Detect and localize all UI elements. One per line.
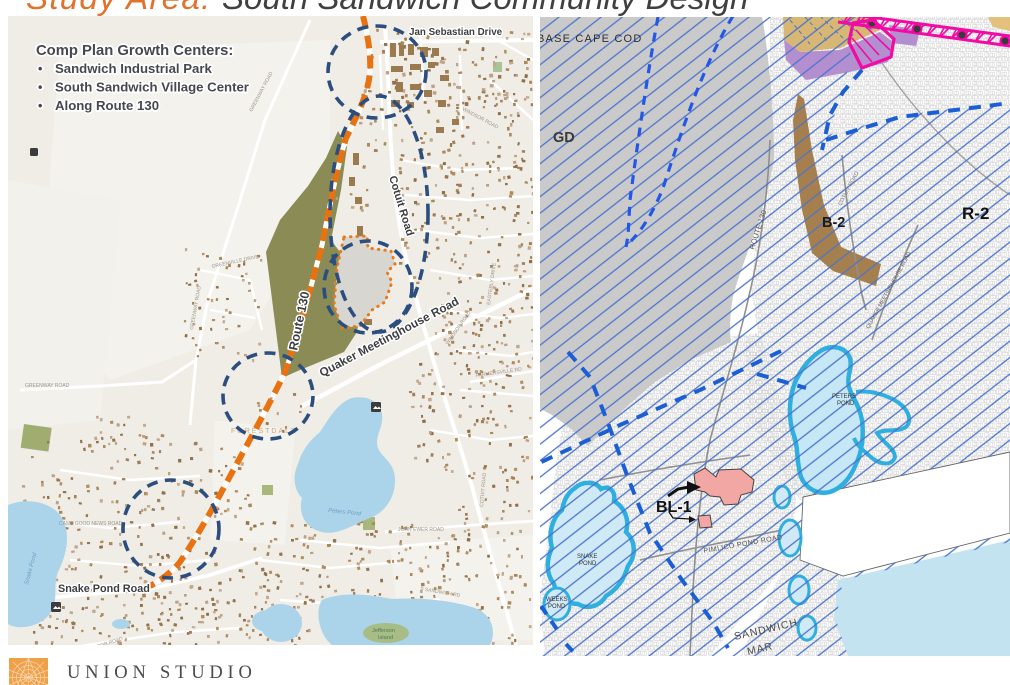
svg-text:Sandwich Industrial Park: Sandwich Industrial Park — [55, 61, 212, 76]
svg-text:B-2: B-2 — [822, 215, 845, 231]
svg-text:Jefferson: Jefferson — [372, 628, 395, 634]
svg-text:R-2: R-2 — [962, 204, 989, 223]
svg-text:Comp Plan Growth Centers:: Comp Plan Growth Centers: — [36, 43, 233, 59]
svg-text:Snake Pond Road: Snake Pond Road — [58, 583, 150, 595]
svg-text:Along Route 130: Along Route 130 — [55, 98, 159, 113]
svg-text:South Sandwich Village Center: South Sandwich Village Center — [55, 80, 249, 95]
svg-text:GD: GD — [553, 130, 575, 146]
svg-text:WEEKS: WEEKS — [546, 597, 568, 603]
svg-text:Jan Sebastian Drive: Jan Sebastian Drive — [409, 27, 503, 38]
svg-text:CAMP GOOD NEWS ROAD: CAMP GOOD NEWS ROAD — [59, 521, 123, 527]
svg-text:POND: POND — [548, 604, 566, 610]
svg-text:•: • — [38, 81, 42, 95]
svg-text:•: • — [38, 62, 42, 76]
svg-text:POND: POND — [579, 561, 597, 567]
svg-text:GREENWAY ROAD: GREENWAY ROAD — [25, 383, 70, 389]
svg-text:•: • — [38, 99, 42, 113]
svg-text:JOHN EWER ROAD: JOHN EWER ROAD — [398, 527, 444, 533]
svg-text:PETERS: PETERS — [832, 394, 856, 400]
svg-text:BL-1: BL-1 — [656, 499, 692, 516]
svg-text:Island: Island — [378, 635, 393, 641]
svg-text:SNAKE: SNAKE — [577, 554, 597, 560]
svg-text:BASE CAPE COD: BASE CAPE COD — [540, 33, 642, 45]
svg-text:POND: POND — [837, 401, 855, 407]
